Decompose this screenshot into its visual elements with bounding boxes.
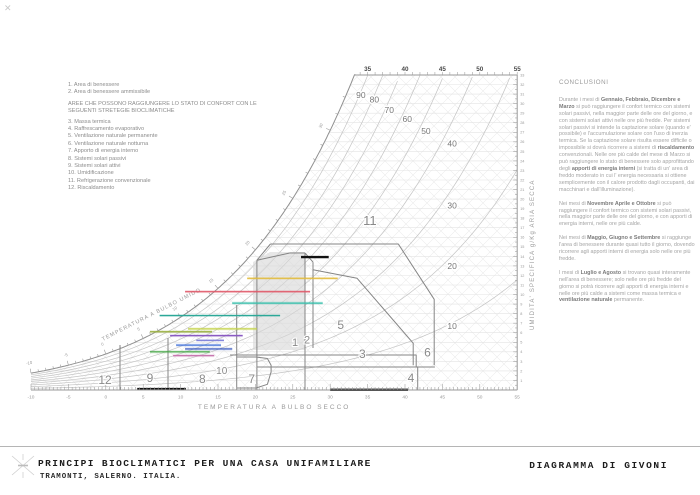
svg-text:10: 10 xyxy=(178,395,184,401)
svg-text:UMIDITA' SPECIFICA g/Kg ARI: UMIDITA' SPECIFICA g/Kg ARIA SECCA xyxy=(530,179,536,330)
svg-text:8: 8 xyxy=(199,372,206,386)
svg-text:10: 10 xyxy=(447,321,457,331)
svg-text:20: 20 xyxy=(253,395,259,401)
legend-item: 11. Refrigerazione convenzionale xyxy=(68,178,286,185)
svg-text:22: 22 xyxy=(520,178,524,182)
svg-text:40: 40 xyxy=(447,139,457,149)
svg-text:12: 12 xyxy=(520,274,524,278)
svg-text:50: 50 xyxy=(421,126,431,136)
zone-legend: 1. Area di benessere2. Area di benessere… xyxy=(68,82,286,193)
conclusions-paragraph: Durante i mesi di Gennaio, Febbraio, Dic… xyxy=(559,97,696,194)
svg-text:9: 9 xyxy=(520,302,522,306)
svg-text:14: 14 xyxy=(520,255,524,259)
svg-text:30: 30 xyxy=(447,201,457,211)
svg-text:45: 45 xyxy=(440,395,446,401)
legend-benessere-items: 1. Area di benessere2. Area di benessere… xyxy=(68,82,286,97)
svg-text:7: 7 xyxy=(248,372,255,386)
svg-text:40: 40 xyxy=(402,395,408,401)
svg-text:24: 24 xyxy=(520,159,524,163)
svg-text:31: 31 xyxy=(520,92,524,96)
conclusions-body: Durante i mesi di Gennaio, Febbraio, Dic… xyxy=(559,97,696,304)
svg-text:80: 80 xyxy=(370,95,380,105)
svg-text:10: 10 xyxy=(520,293,524,297)
svg-text:55: 55 xyxy=(514,66,522,73)
svg-text:17: 17 xyxy=(520,226,524,230)
svg-text:13: 13 xyxy=(520,264,524,268)
legend-item: 3. Massa termica xyxy=(68,119,286,126)
svg-text:3: 3 xyxy=(520,360,522,364)
svg-text:30: 30 xyxy=(520,102,524,106)
legend-item: 2. Area di benessere ammissibile xyxy=(68,89,286,96)
svg-text:5: 5 xyxy=(520,341,522,345)
svg-text:7: 7 xyxy=(520,322,522,326)
svg-text:10: 10 xyxy=(216,366,228,377)
svg-text:32: 32 xyxy=(520,83,524,87)
svg-text:-10: -10 xyxy=(26,360,33,366)
svg-text:11: 11 xyxy=(520,283,524,287)
sheet-subtitle: TRAMONTI, SALERNO. ITALIA. xyxy=(40,473,181,481)
svg-text:90: 90 xyxy=(356,90,366,100)
svg-text:TEMPERATURA A BULBO SECCO: TEMPERATURA A BULBO SECCO xyxy=(198,404,350,411)
svg-text:19: 19 xyxy=(520,207,524,211)
svg-text:20: 20 xyxy=(244,239,251,246)
svg-text:26: 26 xyxy=(520,140,524,144)
svg-text:15: 15 xyxy=(215,395,221,401)
legend-strategy-items: 3. Massa termica4. Raffrescamento evapor… xyxy=(68,119,286,193)
svg-text:12: 12 xyxy=(98,373,112,387)
svg-text:25: 25 xyxy=(290,395,296,401)
svg-text:35: 35 xyxy=(365,395,371,401)
svg-text:2: 2 xyxy=(304,335,310,347)
svg-text:16: 16 xyxy=(520,236,524,240)
svg-text:15: 15 xyxy=(208,277,215,284)
sheet-right-title: DIAGRAMMA DI GIVONI xyxy=(529,460,668,471)
conclusions-paragraph: I mesi di Luglio e Agosto si trovano qua… xyxy=(559,270,696,305)
svg-text:5: 5 xyxy=(136,326,141,332)
svg-text:35: 35 xyxy=(364,66,372,73)
sheet-title: PRINCIPI BIOCLIMATICI PER UNA CASA UNIFA… xyxy=(38,458,372,469)
svg-text:60: 60 xyxy=(403,114,413,124)
legend-item: 12. Riscaldamento xyxy=(68,185,286,192)
svg-text:40: 40 xyxy=(401,66,409,73)
svg-text:3: 3 xyxy=(359,347,366,361)
legend-item: 5. Ventilazione naturale permanente xyxy=(68,133,286,140)
svg-text:20: 20 xyxy=(447,261,457,271)
svg-text:21: 21 xyxy=(520,188,524,192)
svg-text:6: 6 xyxy=(520,331,522,335)
svg-text:9: 9 xyxy=(147,371,154,385)
legend-header: AREE CHE POSSONO RAGGIUNGERE LO STATO DI… xyxy=(68,101,286,116)
svg-text:2: 2 xyxy=(520,369,522,373)
svg-text:28: 28 xyxy=(520,121,524,125)
conclusions-paragraph: Nei mesi di Maggio, Giugno e Settembre s… xyxy=(559,235,696,263)
drawing-sheet: ✕ -10-5051015202530TEMPERATURA A BULBO U… xyxy=(0,0,700,495)
legend-item: 1. Area di benessere xyxy=(68,82,286,89)
svg-text:30: 30 xyxy=(317,122,324,129)
svg-text:-5: -5 xyxy=(66,395,71,401)
legend-item: 8. Sistemi solari passivi xyxy=(68,156,286,163)
svg-text:5: 5 xyxy=(142,395,145,401)
svg-text:20: 20 xyxy=(520,197,524,201)
svg-text:29: 29 xyxy=(520,112,524,116)
svg-text:30: 30 xyxy=(328,395,334,401)
svg-text:-5: -5 xyxy=(63,352,68,358)
legend-item: 4. Raffrescamento evaporativo xyxy=(68,126,286,133)
legend-item: 7. Apporto di energia interno xyxy=(68,148,286,155)
svg-text:55: 55 xyxy=(515,395,521,401)
top-axis: 3540455055 xyxy=(356,66,521,75)
conclusions-paragraph: Nei mesi di Novembre Aprile e Ottobre si… xyxy=(559,201,696,229)
svg-text:8: 8 xyxy=(520,312,522,316)
svg-text:11: 11 xyxy=(363,213,377,228)
conclusions-column: CONCLUSIONI Durante i mesi di Gennaio, F… xyxy=(559,80,696,311)
svg-text:0: 0 xyxy=(104,395,107,401)
svg-text:23: 23 xyxy=(520,169,524,173)
svg-text:50: 50 xyxy=(477,395,483,401)
svg-text:4: 4 xyxy=(408,371,415,385)
studio-logo-icon xyxy=(10,453,36,479)
svg-text:4: 4 xyxy=(520,350,522,354)
conclusions-title: CONCLUSIONI xyxy=(559,80,696,87)
svg-text:1: 1 xyxy=(292,337,298,349)
comfort-zone-fill xyxy=(253,252,305,350)
svg-text:70: 70 xyxy=(385,105,395,115)
title-block: PRINCIPI BIOCLIMATICI PER UNA CASA UNIFA… xyxy=(0,446,700,495)
svg-text:27: 27 xyxy=(520,131,524,135)
svg-text:-10: -10 xyxy=(28,395,35,401)
legend-item: 10. Umidificazione xyxy=(68,170,286,177)
legend-item: 6. Ventilazione naturale notturna xyxy=(68,141,286,148)
legend-item: 9. Sistemi solari attivi xyxy=(68,163,286,170)
svg-text:25: 25 xyxy=(520,150,524,154)
svg-text:6: 6 xyxy=(424,346,431,360)
svg-text:18: 18 xyxy=(520,217,524,221)
svg-text:15: 15 xyxy=(520,245,524,249)
svg-text:5: 5 xyxy=(337,318,344,332)
svg-text:45: 45 xyxy=(439,66,447,73)
svg-text:33: 33 xyxy=(520,73,524,77)
svg-text:50: 50 xyxy=(476,66,484,73)
svg-text:1: 1 xyxy=(520,379,522,383)
